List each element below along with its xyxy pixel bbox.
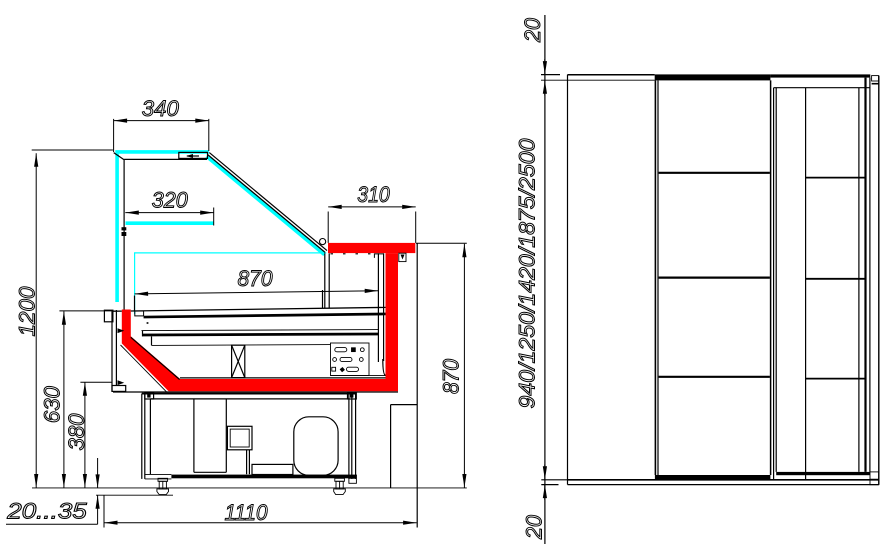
svg-text:630: 630 [39, 386, 64, 423]
svg-text:20: 20 [522, 515, 547, 540]
svg-text:870: 870 [238, 266, 273, 291]
svg-text:1200: 1200 [15, 286, 40, 336]
svg-text:340: 340 [142, 96, 179, 121]
svg-text:940/1250/1420/1875/2500: 940/1250/1420/1875/2500 [515, 138, 540, 408]
svg-text:870: 870 [439, 359, 464, 394]
svg-text:320: 320 [152, 188, 188, 213]
svg-text:310: 310 [357, 182, 390, 207]
svg-text:1110: 1110 [225, 500, 268, 525]
svg-text:380: 380 [64, 413, 89, 450]
svg-text:20...35: 20...35 [6, 499, 87, 524]
svg-text:20: 20 [520, 18, 545, 43]
